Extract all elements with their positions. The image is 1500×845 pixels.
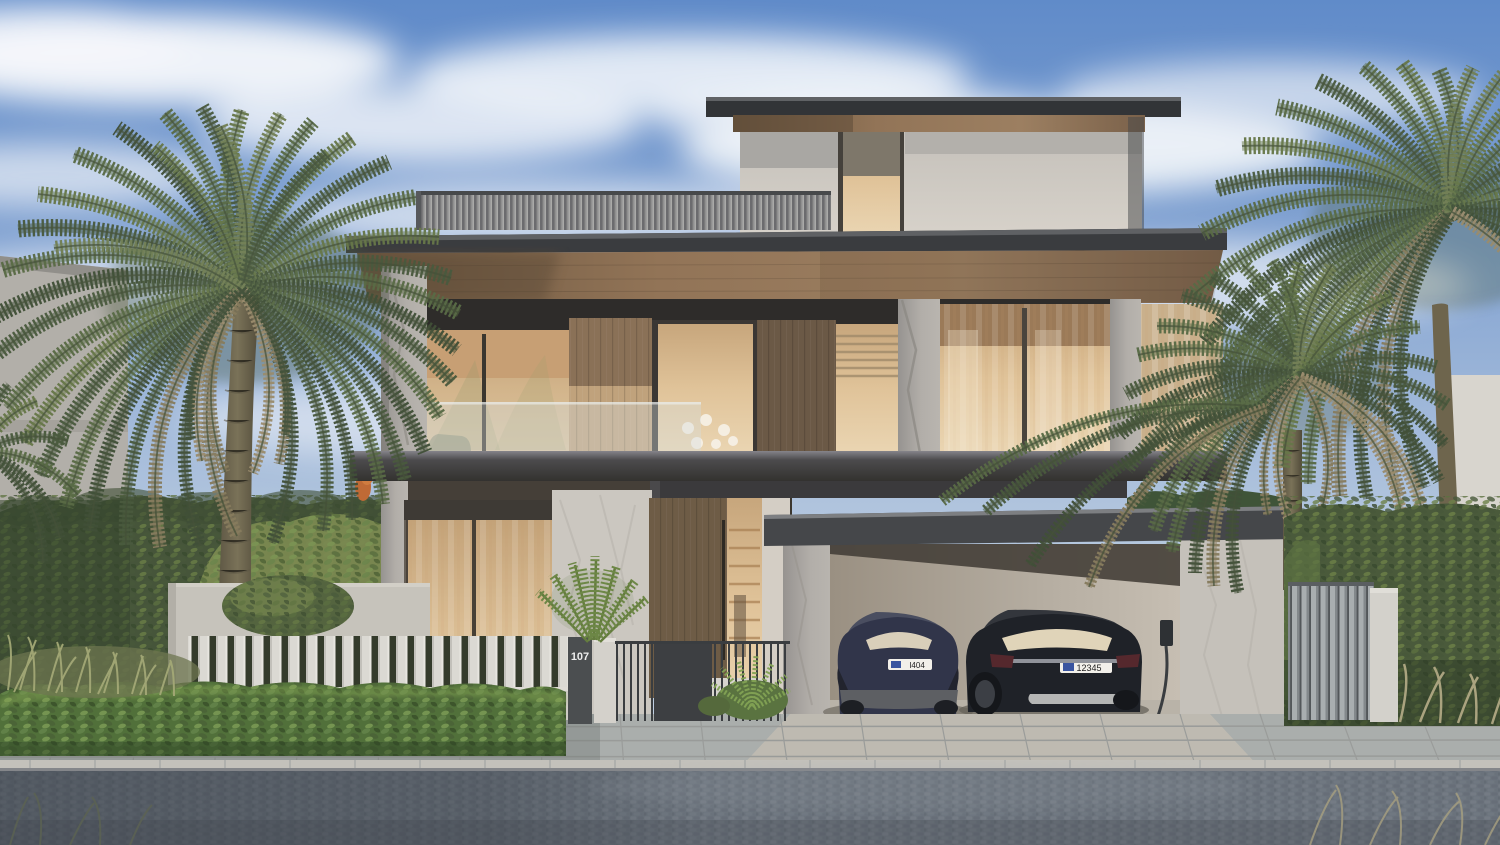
svg-text:I404: I404 (909, 661, 925, 670)
svg-text:12345: 12345 (1076, 663, 1101, 673)
svg-text:107: 107 (571, 651, 589, 663)
